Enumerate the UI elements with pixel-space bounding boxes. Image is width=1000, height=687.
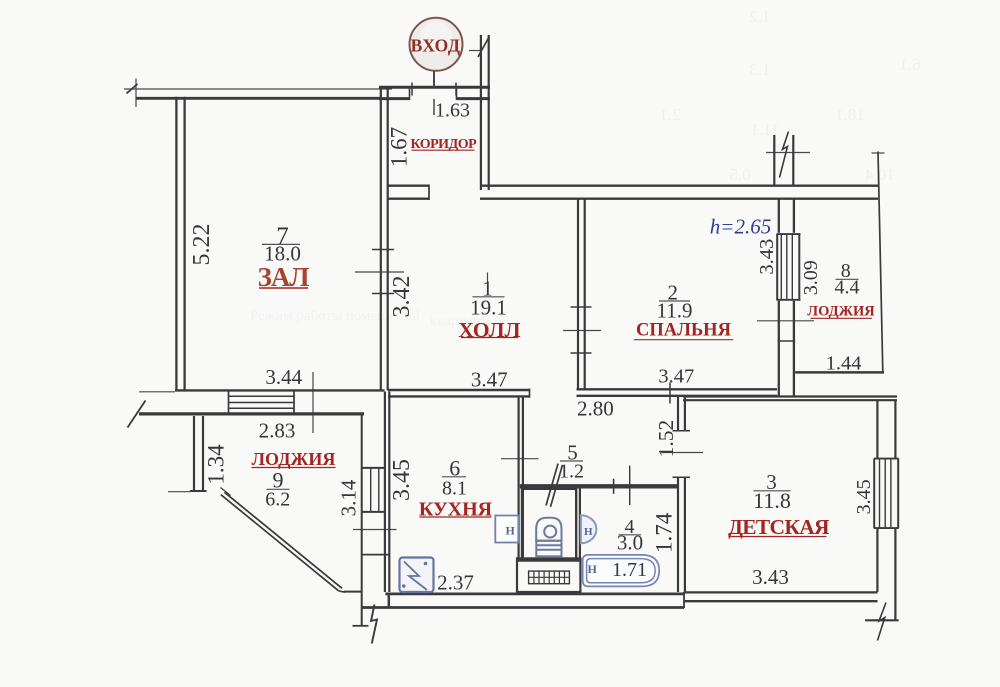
svg-text:3.47: 3.47 — [658, 366, 694, 388]
svg-text:3.42: 3.42 — [389, 276, 415, 318]
svg-text:1.3: 1.3 — [749, 60, 770, 79]
svg-text:10.4: 10.4 — [865, 165, 895, 184]
svg-text:ДЕТСКАЯ: ДЕТСКАЯ — [728, 515, 830, 539]
svg-text:3.45: 3.45 — [853, 479, 875, 514]
svg-text:3.09: 3.09 — [800, 260, 822, 295]
svg-text:6.2: 6.2 — [265, 489, 290, 511]
svg-text:ХОЛЛ: ХОЛЛ — [458, 318, 520, 342]
svg-text:1.71: 1.71 — [612, 559, 647, 581]
svg-text:11.9: 11.9 — [657, 299, 693, 323]
svg-text:3.43: 3.43 — [756, 239, 778, 275]
svg-text:1.34: 1.34 — [203, 444, 228, 485]
svg-text:1.63: 1.63 — [435, 100, 470, 122]
svg-text:ВХОД: ВХОД — [411, 36, 461, 56]
svg-text:Н: Н — [584, 526, 593, 538]
svg-text:1.74: 1.74 — [652, 512, 677, 553]
svg-text:ЛОДЖИЯ: ЛОДЖИЯ — [252, 449, 336, 469]
svg-text:5.22: 5.22 — [189, 224, 215, 266]
svg-text:3.0: 3.0 — [617, 531, 643, 555]
svg-text:8.1: 8.1 — [442, 478, 467, 500]
svg-text:1.44: 1.44 — [826, 353, 862, 375]
svg-text:4.4: 4.4 — [835, 277, 860, 299]
svg-text:ЛОДЖИЯ: ЛОДЖИЯ — [807, 304, 875, 320]
svg-text:h=2.65: h=2.65 — [710, 215, 771, 239]
svg-text:Н: Н — [506, 524, 516, 538]
svg-text:0.5: 0.5 — [729, 165, 750, 184]
svg-text:1.2: 1.2 — [749, 7, 770, 26]
svg-text:3.47: 3.47 — [471, 368, 508, 392]
svg-text:3.44: 3.44 — [265, 365, 302, 389]
svg-text:2.83: 2.83 — [259, 419, 296, 443]
svg-text:2.80: 2.80 — [577, 397, 614, 421]
svg-text:2.1: 2.1 — [659, 105, 680, 124]
svg-text:1.2: 1.2 — [559, 461, 584, 483]
svg-text:11.8: 11.8 — [753, 488, 791, 513]
svg-text:Н: Н — [588, 562, 598, 576]
svg-text:2.37: 2.37 — [437, 571, 474, 595]
svg-text:СПАЛЬНЯ: СПАЛЬНЯ — [636, 321, 732, 341]
svg-text:6.1: 6.1 — [899, 55, 920, 74]
svg-text:3.43: 3.43 — [752, 565, 789, 589]
svg-text:3.14: 3.14 — [336, 479, 360, 516]
svg-text:18.0: 18.0 — [264, 242, 301, 266]
svg-text:1.67: 1.67 — [387, 127, 412, 167]
svg-text:1.52: 1.52 — [654, 420, 678, 458]
svg-text:19.1: 19.1 — [470, 296, 507, 320]
svg-text:3.45: 3.45 — [389, 459, 415, 501]
svg-text:18.1: 18.1 — [835, 105, 865, 124]
